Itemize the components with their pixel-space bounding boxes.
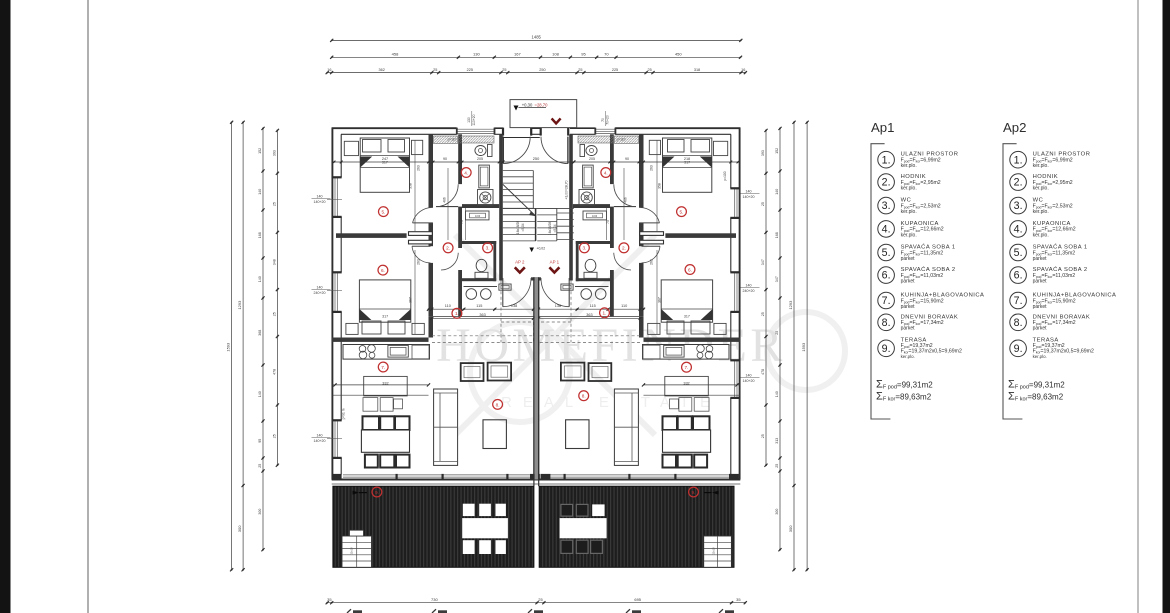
svg-text:+0,30: +0,30 xyxy=(522,103,533,108)
svg-text:parket: parket xyxy=(901,304,916,310)
svg-text:=5,04: =5,04 xyxy=(553,224,557,232)
svg-text:+0,02: +0,02 xyxy=(537,247,546,251)
svg-text:25: 25 xyxy=(775,464,779,468)
svg-text:300: 300 xyxy=(788,525,793,532)
svg-text:70: 70 xyxy=(460,220,464,224)
svg-text:486: 486 xyxy=(443,197,447,203)
svg-text:478: 478 xyxy=(761,369,765,375)
svg-text:25: 25 xyxy=(272,434,276,438)
svg-text:9.: 9. xyxy=(1014,343,1023,355)
svg-text:p=110: p=110 xyxy=(448,138,457,142)
svg-text:25: 25 xyxy=(433,68,437,72)
svg-text:300: 300 xyxy=(775,509,779,515)
svg-text:140: 140 xyxy=(317,194,323,198)
svg-text:7.: 7. xyxy=(882,295,891,307)
svg-text:225: 225 xyxy=(612,68,618,72)
svg-text:140: 140 xyxy=(775,391,779,397)
svg-text:263: 263 xyxy=(650,259,654,265)
svg-text:25: 25 xyxy=(272,202,276,206)
svg-text:25: 25 xyxy=(761,202,765,206)
svg-text:ker.plo.: ker.plo. xyxy=(901,232,917,238)
svg-text:16x18/28: 16x18/28 xyxy=(516,221,520,234)
svg-text:2.: 2. xyxy=(882,177,891,189)
svg-text:6.: 6. xyxy=(688,267,692,272)
svg-text:6.: 6. xyxy=(882,270,891,282)
svg-text:140: 140 xyxy=(317,433,323,437)
svg-text:8.: 8. xyxy=(496,402,500,407)
svg-text:7.: 7. xyxy=(685,365,689,370)
svg-text:parket: parket xyxy=(1033,256,1048,262)
svg-text:parket: parket xyxy=(1033,326,1048,332)
svg-text:695: 695 xyxy=(634,597,641,602)
svg-text:140: 140 xyxy=(258,189,262,195)
svg-text:140: 140 xyxy=(317,285,323,289)
svg-text:ker.plo.: ker.plo. xyxy=(1033,354,1047,359)
svg-text:AP 1: AP 1 xyxy=(550,260,560,265)
svg-text:3.: 3. xyxy=(486,246,490,251)
svg-text:9.: 9. xyxy=(882,343,891,355)
svg-text:70: 70 xyxy=(606,220,610,224)
svg-text:358: 358 xyxy=(409,183,413,189)
svg-text:317: 317 xyxy=(382,315,388,319)
svg-text:6.: 6. xyxy=(1014,270,1023,282)
svg-text:parket: parket xyxy=(1033,304,1048,310)
svg-text:1.: 1. xyxy=(455,311,459,316)
svg-text:25: 25 xyxy=(578,68,582,72)
svg-text:140+20: 140+20 xyxy=(742,379,754,383)
svg-text:1.: 1. xyxy=(882,154,891,166)
svg-text:348: 348 xyxy=(272,259,276,265)
svg-text:35: 35 xyxy=(327,597,332,602)
svg-text:25: 25 xyxy=(272,312,276,316)
svg-text:9.: 9. xyxy=(375,490,379,495)
svg-text:478: 478 xyxy=(272,369,276,375)
svg-text:70+20: 70+20 xyxy=(606,115,610,125)
svg-text:2.: 2. xyxy=(622,246,626,251)
svg-text:15x18: 15x18 xyxy=(712,547,716,555)
svg-text:=28,70: =28,70 xyxy=(535,103,549,108)
svg-text:3.: 3. xyxy=(1014,200,1023,212)
svg-text:25: 25 xyxy=(538,597,543,602)
svg-text:140: 140 xyxy=(746,189,752,193)
svg-text:318: 318 xyxy=(694,68,700,72)
svg-text:362: 362 xyxy=(379,68,385,72)
svg-text:152: 152 xyxy=(775,148,779,154)
svg-text:8.: 8. xyxy=(1014,317,1023,329)
svg-text:263: 263 xyxy=(650,165,654,171)
svg-text:90: 90 xyxy=(443,157,447,161)
svg-text:313: 313 xyxy=(775,438,779,444)
svg-text:368: 368 xyxy=(258,330,262,336)
svg-text:458: 458 xyxy=(392,52,399,57)
svg-text:450: 450 xyxy=(675,52,682,57)
svg-text:393: 393 xyxy=(272,150,276,156)
svg-text:6.: 6. xyxy=(381,268,385,273)
svg-text:p=110: p=110 xyxy=(617,138,626,142)
svg-text:140: 140 xyxy=(258,276,262,282)
svg-text:ker.plo.: ker.plo. xyxy=(901,354,915,359)
svg-text:358: 358 xyxy=(658,183,662,189)
svg-text:140+20: 140+20 xyxy=(313,439,325,443)
svg-text:16: 16 xyxy=(327,68,331,72)
svg-text:140+20: 140+20 xyxy=(313,200,325,204)
svg-text:2.: 2. xyxy=(1014,177,1023,189)
svg-text:15x18: 15x18 xyxy=(350,547,354,555)
svg-text:ker.plo.: ker.plo. xyxy=(1033,232,1049,238)
svg-text:1485: 1485 xyxy=(532,35,542,40)
svg-text:3.: 3. xyxy=(582,246,586,251)
svg-text:168: 168 xyxy=(775,232,779,238)
svg-text:367: 367 xyxy=(658,297,662,303)
svg-text:ker.plo.: ker.plo. xyxy=(1033,163,1049,169)
svg-text:140+20: 140+20 xyxy=(742,195,754,199)
svg-text:300: 300 xyxy=(237,525,242,532)
svg-text:110+20: 110+20 xyxy=(472,114,476,125)
svg-text:25: 25 xyxy=(761,434,765,438)
svg-text:218: 218 xyxy=(684,157,690,161)
svg-text:240+20: 240+20 xyxy=(313,291,325,295)
svg-text:5.: 5. xyxy=(1014,247,1023,259)
svg-text:parket: parket xyxy=(901,326,916,332)
svg-text:Ap2: Ap2 xyxy=(1003,120,1026,135)
svg-text:ker.plo.: ker.plo. xyxy=(901,209,917,215)
svg-text:8.: 8. xyxy=(582,394,586,399)
svg-text:25: 25 xyxy=(775,331,779,335)
svg-text:108: 108 xyxy=(552,52,559,57)
svg-text:parket: parket xyxy=(901,256,916,262)
svg-text:130: 130 xyxy=(467,117,471,123)
svg-text:1293: 1293 xyxy=(237,300,242,310)
svg-text:8.: 8. xyxy=(882,317,891,329)
svg-text:240+20: 240+20 xyxy=(742,289,754,293)
svg-text:5.: 5. xyxy=(680,210,684,215)
svg-text:130: 130 xyxy=(473,52,480,57)
svg-text:140: 140 xyxy=(258,391,262,397)
svg-text:347: 347 xyxy=(761,259,765,265)
svg-text:ker.plo.: ker.plo. xyxy=(901,186,917,192)
svg-text:4.: 4. xyxy=(604,170,608,175)
svg-text:Ap1: Ap1 xyxy=(871,120,894,135)
svg-text:115: 115 xyxy=(590,304,596,308)
svg-text:347: 347 xyxy=(775,276,779,282)
svg-text:140: 140 xyxy=(746,283,752,287)
svg-text:AP 2: AP 2 xyxy=(515,260,525,265)
svg-text:100l: 100l xyxy=(475,214,481,218)
svg-text:140: 140 xyxy=(746,373,752,377)
svg-text:1.: 1. xyxy=(1014,154,1023,166)
svg-text:1593: 1593 xyxy=(801,342,806,352)
svg-text:p=100: p=100 xyxy=(723,171,727,180)
svg-text:4.: 4. xyxy=(464,170,468,175)
svg-text:9.: 9. xyxy=(692,490,696,495)
svg-text:263: 263 xyxy=(417,165,421,171)
svg-text:205: 205 xyxy=(589,157,595,161)
svg-text:225: 225 xyxy=(467,68,473,72)
svg-text:16x18/28: 16x18/28 xyxy=(548,222,552,235)
svg-text:ker.plo.: ker.plo. xyxy=(1033,209,1049,215)
svg-text:ker.plo.: ker.plo. xyxy=(901,163,917,169)
svg-text:5.: 5. xyxy=(381,210,385,215)
svg-text:167: 167 xyxy=(514,52,521,57)
svg-text:110: 110 xyxy=(621,304,627,308)
svg-text:parket: parket xyxy=(1033,279,1048,285)
svg-text:70: 70 xyxy=(601,118,605,122)
svg-text:250: 250 xyxy=(533,156,540,161)
svg-text:25: 25 xyxy=(761,312,765,316)
svg-text:138: 138 xyxy=(555,304,561,308)
svg-text:35: 35 xyxy=(736,597,741,602)
svg-text:115: 115 xyxy=(476,304,482,308)
svg-text:168: 168 xyxy=(258,232,262,238)
svg-text:4.: 4. xyxy=(882,224,891,236)
svg-text:140: 140 xyxy=(775,189,779,195)
svg-text:250: 250 xyxy=(539,68,545,72)
svg-text:730: 730 xyxy=(431,597,438,602)
svg-text:110: 110 xyxy=(445,304,451,308)
svg-text:3.: 3. xyxy=(882,200,891,212)
svg-text:5.: 5. xyxy=(882,247,891,259)
svg-text:2.: 2. xyxy=(446,246,450,251)
svg-text:25: 25 xyxy=(258,464,262,468)
svg-text:70: 70 xyxy=(604,52,609,57)
svg-text:16: 16 xyxy=(741,68,745,72)
svg-text:486: 486 xyxy=(624,197,628,203)
svg-text:p=91 m: p=91 m xyxy=(342,408,346,419)
svg-text:+3,00=28,70: +3,00=28,70 xyxy=(565,180,569,199)
svg-text:263: 263 xyxy=(417,259,421,265)
svg-text:393: 393 xyxy=(761,150,765,156)
svg-text:4.: 4. xyxy=(1014,224,1023,236)
svg-text:300: 300 xyxy=(258,509,262,515)
svg-text:7.: 7. xyxy=(381,365,385,370)
svg-text:95: 95 xyxy=(581,52,586,57)
svg-text:317: 317 xyxy=(684,315,690,319)
svg-text:25: 25 xyxy=(647,68,651,72)
svg-text:25: 25 xyxy=(502,68,506,72)
svg-text:1593: 1593 xyxy=(226,342,231,352)
svg-text:ker.plo.: ker.plo. xyxy=(1033,186,1049,192)
svg-text:1293: 1293 xyxy=(788,300,793,310)
svg-text:152: 152 xyxy=(258,148,262,154)
svg-text:95: 95 xyxy=(258,439,262,443)
svg-text:100l: 100l xyxy=(592,214,598,218)
svg-text:367: 367 xyxy=(409,297,413,303)
svg-text:205: 205 xyxy=(477,157,483,161)
svg-text:parket: parket xyxy=(901,279,916,285)
svg-text:90: 90 xyxy=(625,157,629,161)
svg-text:1.: 1. xyxy=(603,311,607,316)
svg-text:138: 138 xyxy=(511,304,517,308)
svg-text:7.: 7. xyxy=(1014,295,1023,307)
svg-text:247: 247 xyxy=(382,157,388,161)
svg-text:=5,04: =5,04 xyxy=(521,223,525,231)
